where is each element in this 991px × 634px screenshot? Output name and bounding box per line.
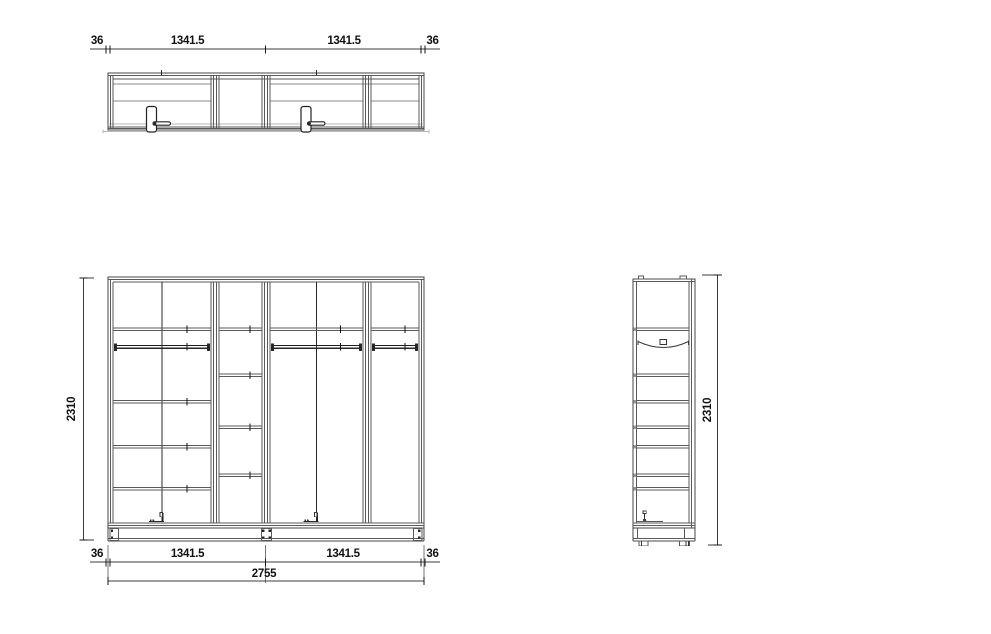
wardrobe-drawing (0, 0, 991, 634)
hanging-rails (114, 344, 418, 352)
side-shelf-pins (634, 327, 636, 490)
dim-top-bay2-label: 1341.5 (327, 35, 360, 47)
dim-top-bay1-label: 1341.5 (171, 35, 204, 47)
front-view (108, 277, 424, 541)
middle-column-shelves (219, 374, 262, 477)
dim-front-height (80, 278, 95, 540)
dim-top-right-label: 36 (426, 35, 438, 47)
side-rail-curve (638, 340, 689, 348)
dim-side-height-label: 2310 (702, 398, 714, 422)
side-bottom-fitting (637, 511, 664, 522)
side-plinth (633, 523, 695, 546)
dim-bottom-right-label: 36 (426, 548, 438, 560)
top-view-divider-walls (211, 76, 371, 129)
dim-bottom-bay1-label: 1341.5 (171, 548, 204, 560)
dim-bottom-left-label: 36 (91, 548, 103, 560)
dim-top-left-label: 36 (91, 35, 103, 47)
technical-drawing-canvas: 36 1341.5 1341.5 36 2310 2310 36 1341.5 … (0, 0, 991, 634)
top-shelf-row (113, 328, 419, 331)
dim-front-height-label: 2310 (66, 397, 78, 421)
side-shelf-edges (637, 328, 690, 490)
dim-bottom-bay2-label: 1341.5 (326, 548, 359, 560)
side-view (633, 276, 695, 546)
front-view-divider-walls (211, 282, 371, 523)
dim-total-width-label: 2755 (252, 568, 276, 580)
front-plinth (108, 523, 424, 541)
bottom-anchor-brackets (149, 513, 319, 522)
dim-top-chain (90, 46, 440, 54)
dimension-annotations (80, 46, 723, 586)
